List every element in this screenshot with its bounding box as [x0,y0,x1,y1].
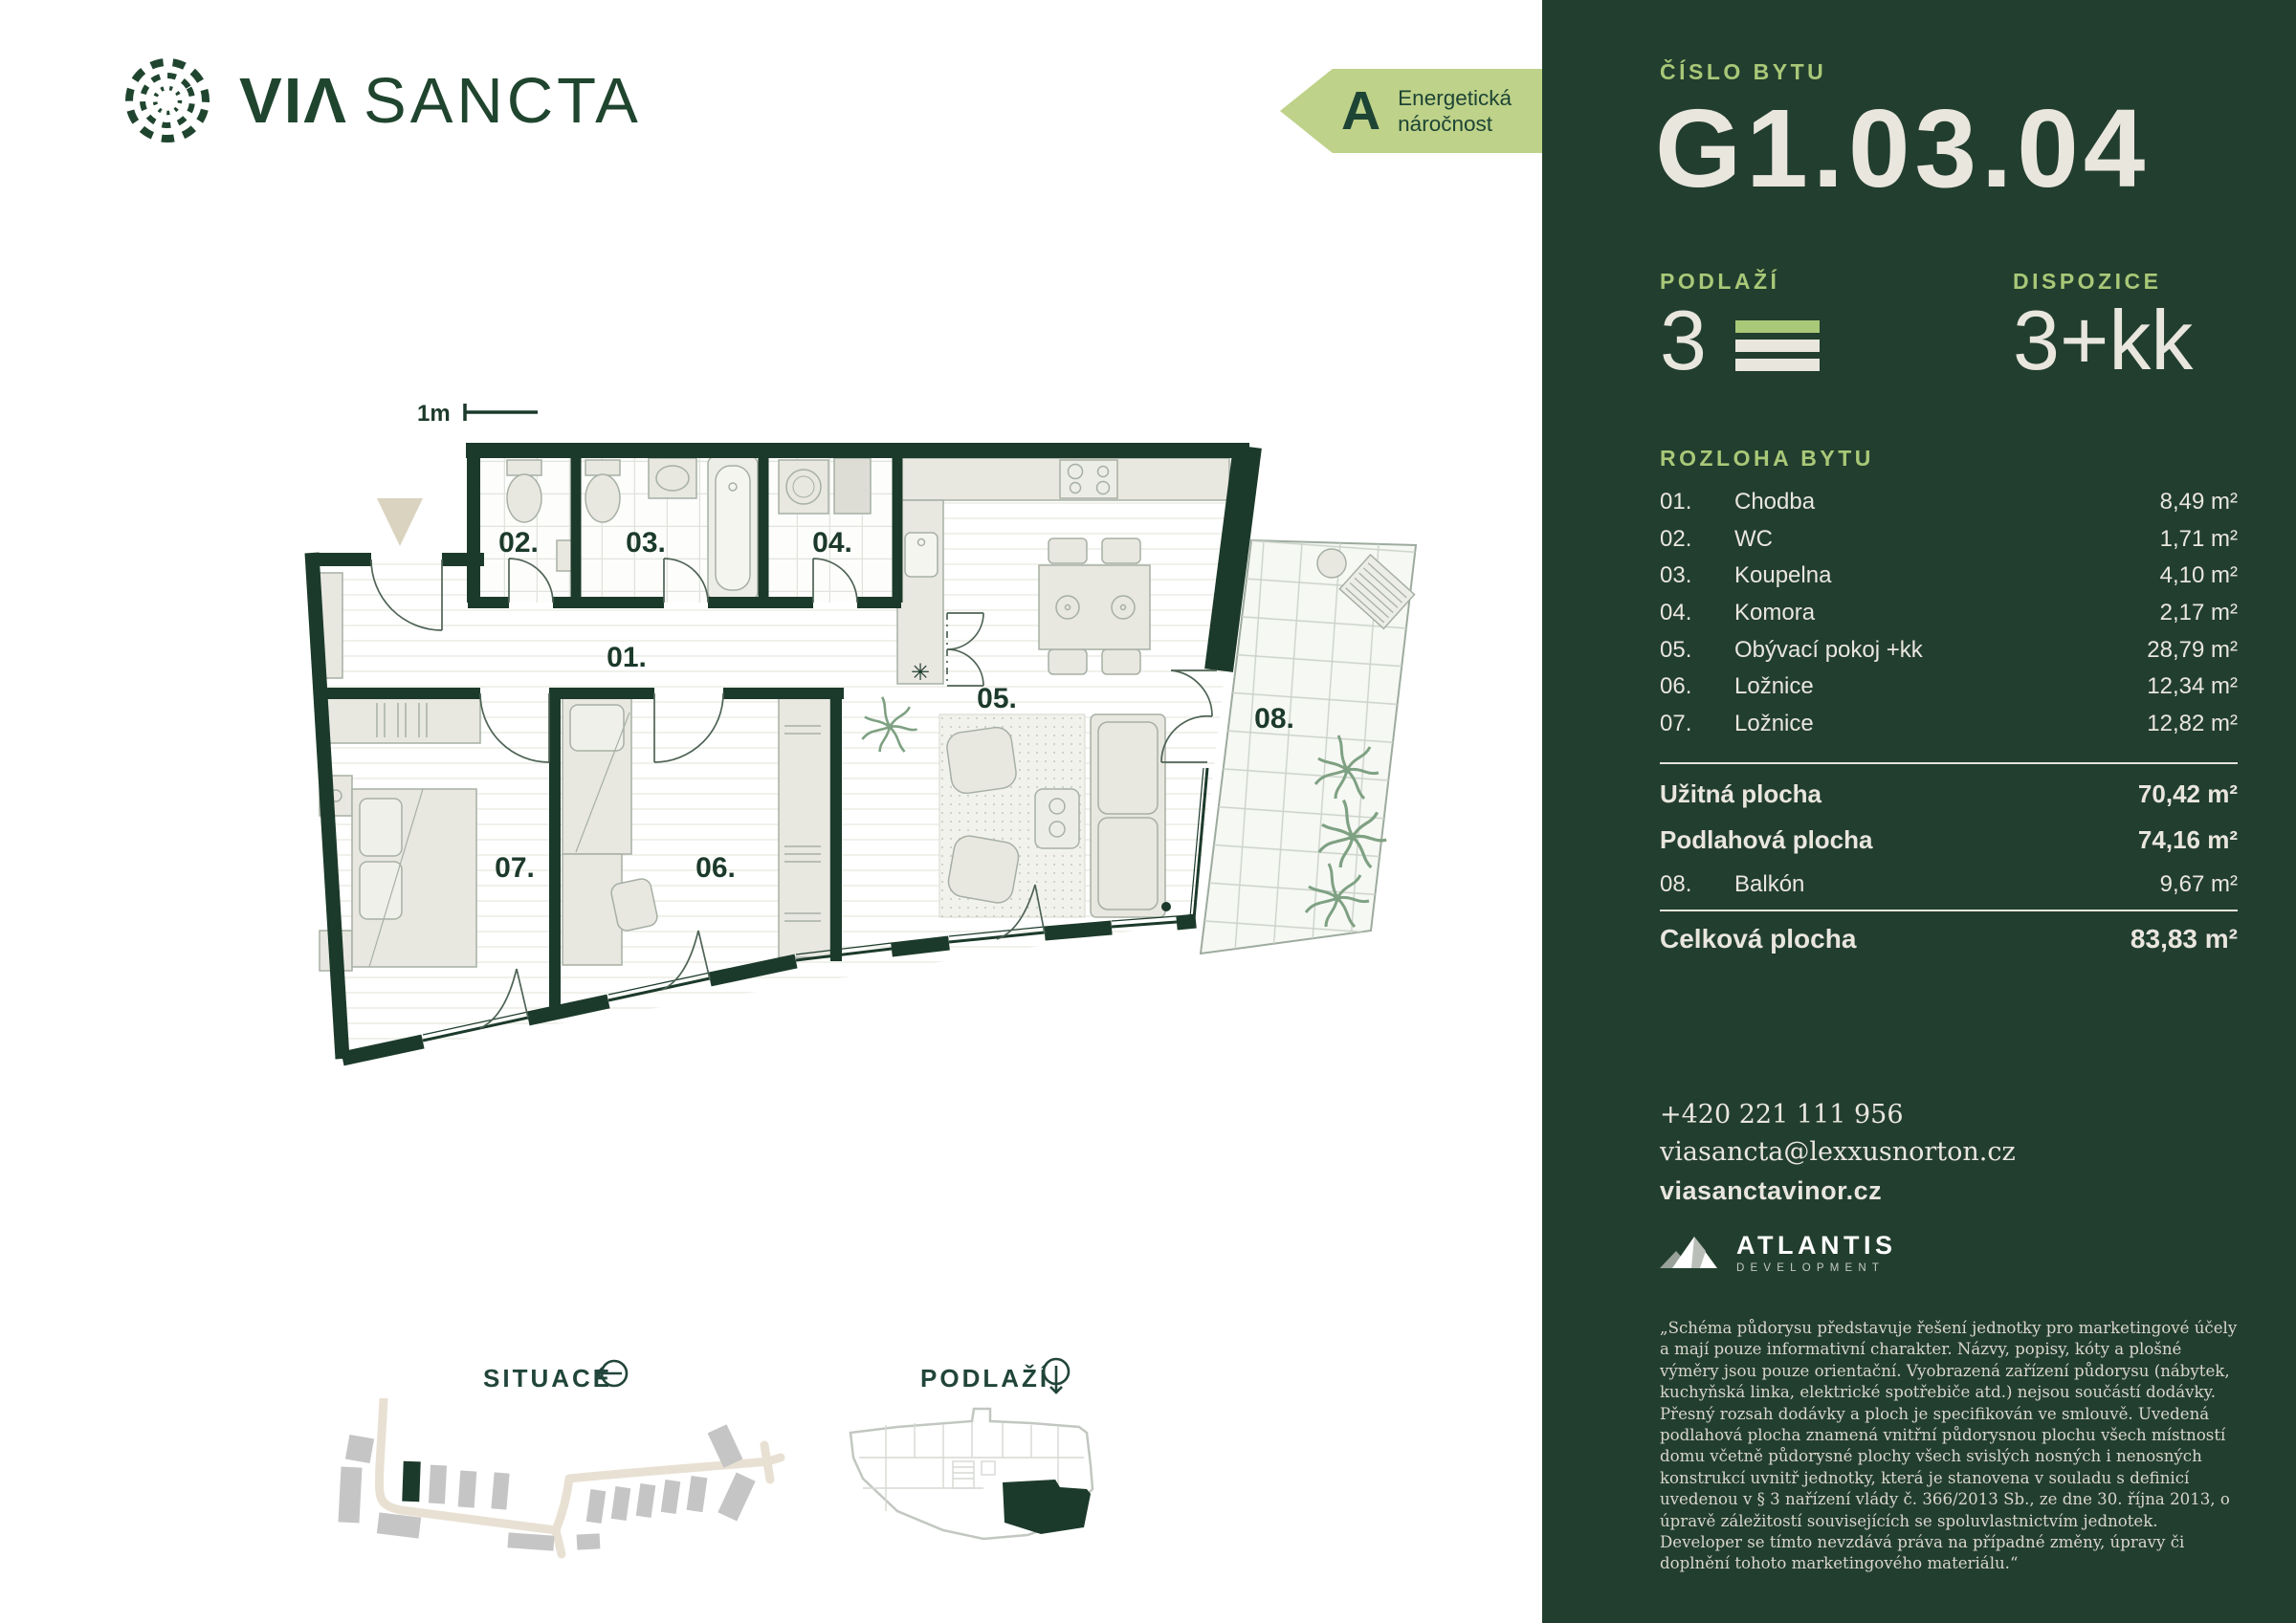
stove [1060,460,1117,498]
energy-grade: A [1341,84,1380,139]
balcony-row: 08. Balkón 9,67 m² [1660,863,2238,907]
divider [1660,762,2238,764]
desk [563,854,622,965]
dining-chair [1102,649,1140,674]
total-area-row: Celková plocha 83,83 m² [1660,924,2238,954]
brand-wordmark: VIΛ SANCTA [239,64,642,138]
dining-chair [1102,538,1140,563]
brand-logo: VIΛ SANCTA [121,54,642,147]
dining-chair [1049,538,1087,563]
table-row: 03. Koupelna 4,10 m² [1660,558,2238,595]
balcony-table [1317,549,1346,578]
room-label-08: 08. [1254,703,1294,735]
room-label-06: 06. [695,852,736,884]
contact-website: viasanctavinor.cz [1660,1171,2016,1211]
dining-chair [1049,649,1087,674]
toilet-tank [585,460,620,475]
disclaimer-text: „Schéma půdorysu představuje řešení jedn… [1660,1318,2241,1575]
disposition-value: 3+kk [2013,298,2193,383]
room-label-04: 04. [812,527,852,559]
table-row: 05. Obývací pokoj +kk 28,79 m² [1660,631,2238,669]
shelf [834,458,871,514]
divider [1660,910,2238,911]
floor-area-row: Podlahová plocha 74,16 m² [1660,817,2238,863]
toilet [507,474,541,522]
small-sink [557,540,573,571]
room-label-07: 07. [495,852,535,884]
unit-number: G1.03.04 [1655,88,2150,210]
unit-number-label: ČÍSLO BYTU [1660,59,1826,85]
situace-map [320,1398,808,1623]
table-row: 07. Ložnice 12,82 m² [1660,706,2238,743]
pillow [360,799,402,856]
toilet-tank [507,460,541,475]
podlazi-title: PODLAŽÍ [920,1364,1049,1393]
wardrobe [323,697,480,743]
armchair [945,726,1018,796]
room-label-05: 05. [977,683,1017,714]
energy-label: Energetická náročnost [1398,85,1512,137]
developer-subtitle: DEVELOPMENT [1736,1262,1896,1274]
entrance-arrow-icon [377,498,423,546]
svg-text:1m: 1m [417,401,451,427]
kitchen-symbol: ✳ [911,660,930,686]
table-row: 06. Ložnice 12,34 m² [1660,669,2238,706]
kitchen-column [897,500,943,684]
brand-word-via: VIΛ [239,64,348,138]
pillow [360,862,402,919]
floor-value: 3 [1660,298,1820,383]
podlazi-map [840,1398,1223,1623]
situace-highlight-building [402,1461,420,1502]
contact-phone: +420 221 111 956 [1660,1096,2016,1133]
brand-word-sancta: SANCTA [364,64,642,138]
floor-label: PODLAŽÍ [1660,269,1779,295]
situace-compass-icon [591,1352,633,1400]
toilet [585,474,620,522]
sofa [1091,714,1165,917]
wardrobe [779,697,830,957]
room-table: 01. Chodba 8,49 m² 02. WC 1,71 m² 03. Ko… [1660,484,2238,742]
area-section-label: ROZLOHA BYTU [1660,446,1874,472]
table-row: 01. Chodba 8,49 m² [1660,484,2238,521]
mountains-icon [1660,1232,1723,1274]
contact-block: +420 221 111 956 viasancta@lexxusnorton.… [1660,1096,2016,1211]
table-row: 02. WC 1,71 m² [1660,521,2238,559]
energy-rating-badge: A Energetická náročnost [1280,69,1542,153]
room-label-03: 03. [626,527,666,559]
developer-logo: ATLANTIS DEVELOPMENT [1660,1232,1896,1274]
room-label-01: 01. [607,642,647,673]
scale-bar: 1m [417,401,538,427]
podlazi-compass-icon [1035,1352,1077,1400]
summary-rows: Užitná plocha 70,42 m² Podlahová plocha … [1660,771,2238,907]
armchair [946,834,1021,906]
info-panel: ČÍSLO BYTU G1.03.04 PODLAŽÍ DISPOZICE 3 … [1542,0,2296,1623]
plan-dot [1161,902,1171,911]
developer-name: ATLANTIS [1736,1233,1896,1259]
via-sancta-rings-icon [121,54,214,147]
sheet-left: VIΛ SANCTA A Energetická náročnost [0,0,1542,1623]
table-row: 04. Komora 2,17 m² [1660,595,2238,632]
pillow [570,705,624,751]
contact-email: viasancta@lexxusnorton.cz [1660,1133,2016,1171]
room-label-02: 02. [498,527,539,559]
floor-level-icon [1735,320,1820,371]
floor-plan: 1m ✳ 01. 02. 03. 04. 05. 06. 07. 08. [277,397,1425,1109]
disposition-label: DISPOZICE [2013,269,2161,295]
usable-area-row: Užitná plocha 70,42 m² [1660,771,2238,817]
